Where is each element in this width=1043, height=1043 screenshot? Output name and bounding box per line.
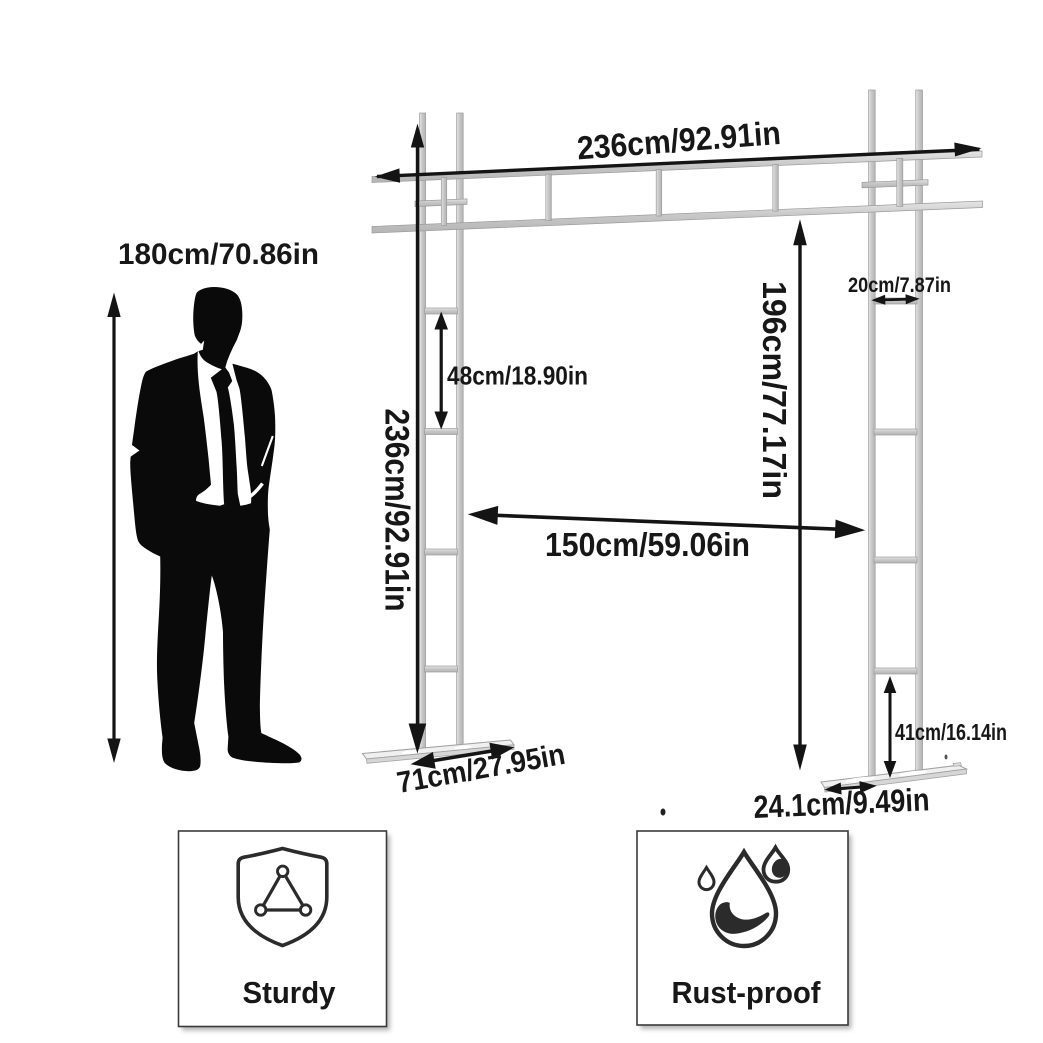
svg-text:150cm/59.06in: 150cm/59.06in xyxy=(545,526,750,563)
svg-text:180cm/70.86in: 180cm/70.86in xyxy=(118,238,319,271)
svg-text:48cm/18.90in: 48cm/18.90in xyxy=(447,361,588,391)
svg-text:Rust-proof: Rust-proof xyxy=(672,975,822,1010)
svg-text:24.1cm/9.49in: 24.1cm/9.49in xyxy=(753,781,930,825)
svg-text:41cm/16.14in: 41cm/16.14in xyxy=(895,719,1007,745)
svg-text:196cm/77.17in: 196cm/77.17in xyxy=(756,281,793,499)
svg-text:20cm/7.87in: 20cm/7.87in xyxy=(848,274,951,297)
svg-text:236cm/92.91in: 236cm/92.91in xyxy=(378,409,416,612)
svg-text:Sturdy: Sturdy xyxy=(243,975,337,1010)
